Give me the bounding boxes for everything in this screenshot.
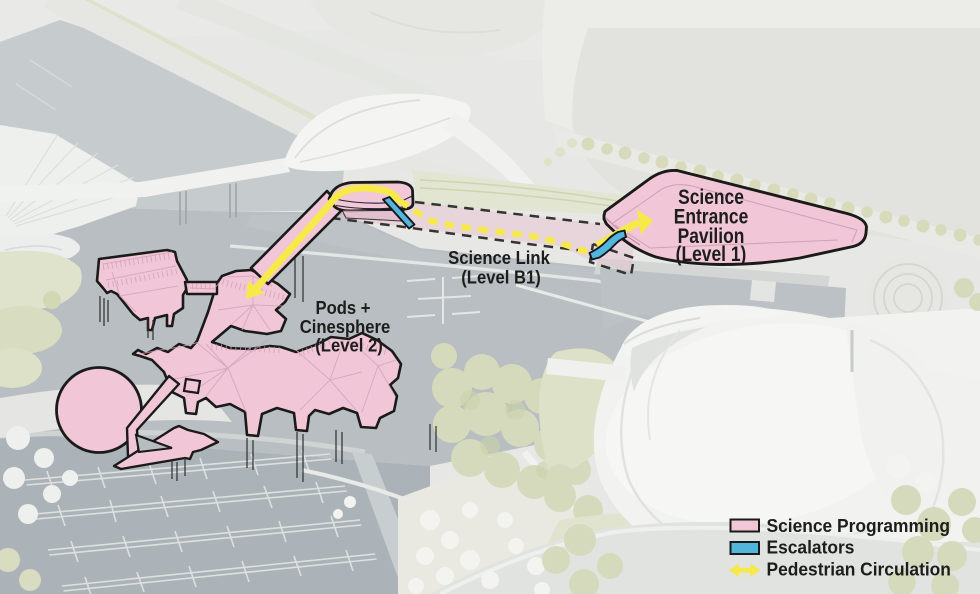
svg-text:Pods +: Pods + bbox=[316, 297, 371, 318]
svg-text:Escalators: Escalators bbox=[767, 537, 855, 558]
svg-text:Science Programming: Science Programming bbox=[767, 516, 950, 537]
svg-text:(Level 2): (Level 2) bbox=[315, 335, 382, 356]
svg-text:Science Link: Science Link bbox=[448, 247, 550, 268]
svg-text:Pedestrian Circulation: Pedestrian Circulation bbox=[767, 559, 951, 580]
svg-text:(Level 1): (Level 1) bbox=[676, 244, 747, 267]
svg-text:(Level B1): (Level B1) bbox=[461, 267, 540, 288]
